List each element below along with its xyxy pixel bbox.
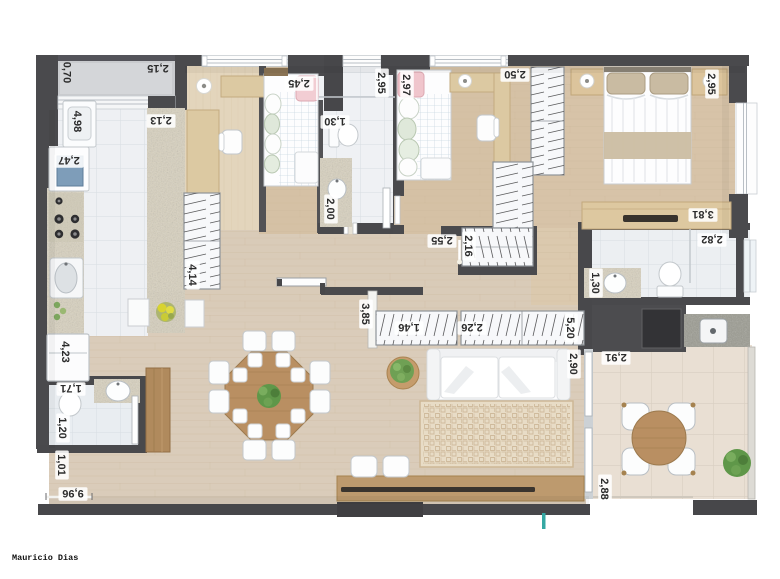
svg-text:1,30: 1,30 <box>589 272 601 293</box>
svg-text:2,95: 2,95 <box>375 72 387 93</box>
svg-text:1,30: 1,30 <box>324 115 345 127</box>
svg-text:1,20: 1,20 <box>56 417 68 438</box>
svg-text:3,85: 3,85 <box>359 303 371 324</box>
svg-text:2,91: 2,91 <box>605 351 626 363</box>
svg-text:2,55: 2,55 <box>431 234 452 246</box>
svg-text:3,81: 3,81 <box>692 208 713 220</box>
svg-text:4,98: 4,98 <box>71 111 83 132</box>
svg-text:2,00: 2,00 <box>324 198 336 219</box>
svg-text:1,71: 1,71 <box>60 382 81 394</box>
svg-text:1,46: 1,46 <box>398 321 419 333</box>
svg-text:9,96: 9,96 <box>62 487 83 499</box>
svg-text:Mauricio Dias: Mauricio Dias <box>12 553 78 563</box>
svg-text:2,50: 2,50 <box>504 68 525 80</box>
svg-text:2,26: 2,26 <box>461 321 482 333</box>
svg-text:2,13: 2,13 <box>150 114 171 126</box>
svg-text:2,82: 2,82 <box>701 233 722 245</box>
svg-text:2,97: 2,97 <box>400 74 412 95</box>
svg-text:2,88: 2,88 <box>598 478 610 499</box>
svg-text:2,45: 2,45 <box>288 77 309 89</box>
svg-text:1,01: 1,01 <box>55 454 67 475</box>
svg-text:4,23: 4,23 <box>59 341 71 362</box>
svg-text:2,15: 2,15 <box>147 62 168 74</box>
svg-text:2,47: 2,47 <box>58 154 79 166</box>
svg-text:2,16: 2,16 <box>462 235 474 256</box>
svg-text:0,70: 0,70 <box>61 62 73 83</box>
svg-text:4,14: 4,14 <box>186 264 198 286</box>
svg-text:2,95: 2,95 <box>705 73 717 94</box>
svg-text:2,90: 2,90 <box>567 353 579 374</box>
svg-text:5,20: 5,20 <box>564 317 576 338</box>
